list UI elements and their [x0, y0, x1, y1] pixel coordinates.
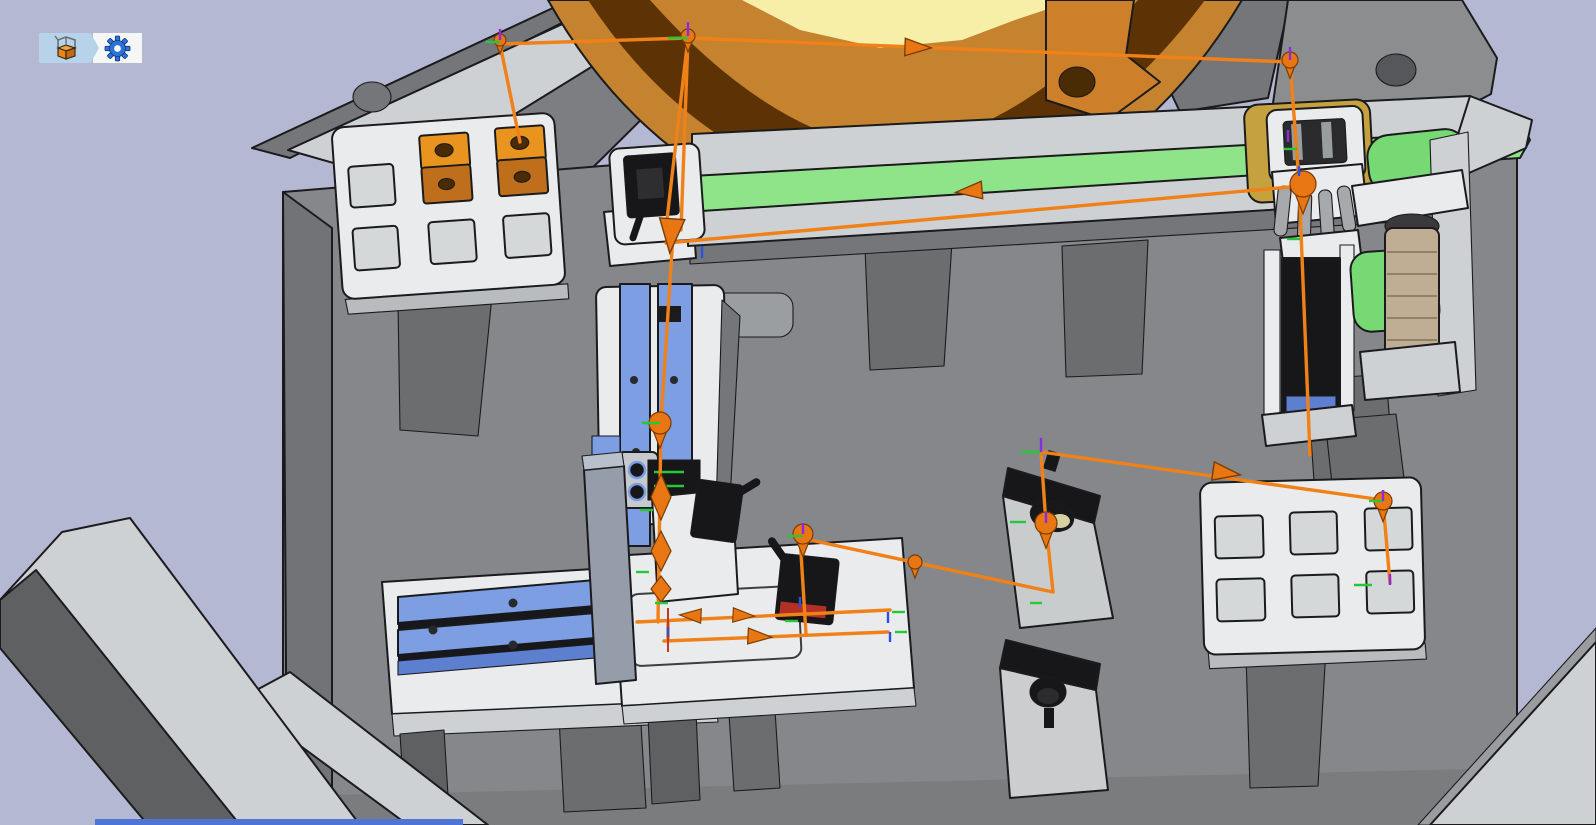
pallet-pocket[interactable]: [352, 226, 400, 271]
motor-body[interactable]: [1385, 228, 1439, 358]
workpiece-cube-1[interactable]: [419, 132, 473, 203]
right-pallet[interactable]: [1200, 477, 1427, 669]
waypoint-pin[interactable]: [908, 555, 922, 569]
pallet-pocket[interactable]: [348, 164, 396, 208]
pallet-pocket[interactable]: [503, 213, 552, 258]
viewport-3d[interactable]: [0, 0, 1596, 825]
workpiece-cube-2[interactable]: [495, 125, 549, 196]
gear-icon: [104, 35, 131, 62]
conveyor-sensor[interactable]: [609, 143, 705, 245]
pallet-pocket[interactable]: [1365, 507, 1413, 550]
workcell-component-button[interactable]: [39, 33, 99, 63]
pallet-pocket[interactable]: [1290, 511, 1338, 554]
blue-edge-object: [95, 819, 463, 825]
pallet-pocket[interactable]: [1216, 578, 1265, 621]
waypoint-pin[interactable]: [1290, 171, 1316, 197]
pallet-pocket[interactable]: [1215, 515, 1264, 558]
toolbar: [39, 33, 142, 63]
crate-3d-icon: [52, 35, 80, 61]
left-pallet[interactable]: [331, 112, 568, 314]
application-window: [0, 0, 1596, 825]
pusher-slide[interactable]: [1282, 258, 1340, 424]
inspection-stand-2[interactable]: [1000, 640, 1108, 798]
pallet-pocket[interactable]: [1291, 574, 1339, 617]
pallet-pocket[interactable]: [428, 219, 477, 264]
settings-button[interactable]: [93, 33, 142, 63]
